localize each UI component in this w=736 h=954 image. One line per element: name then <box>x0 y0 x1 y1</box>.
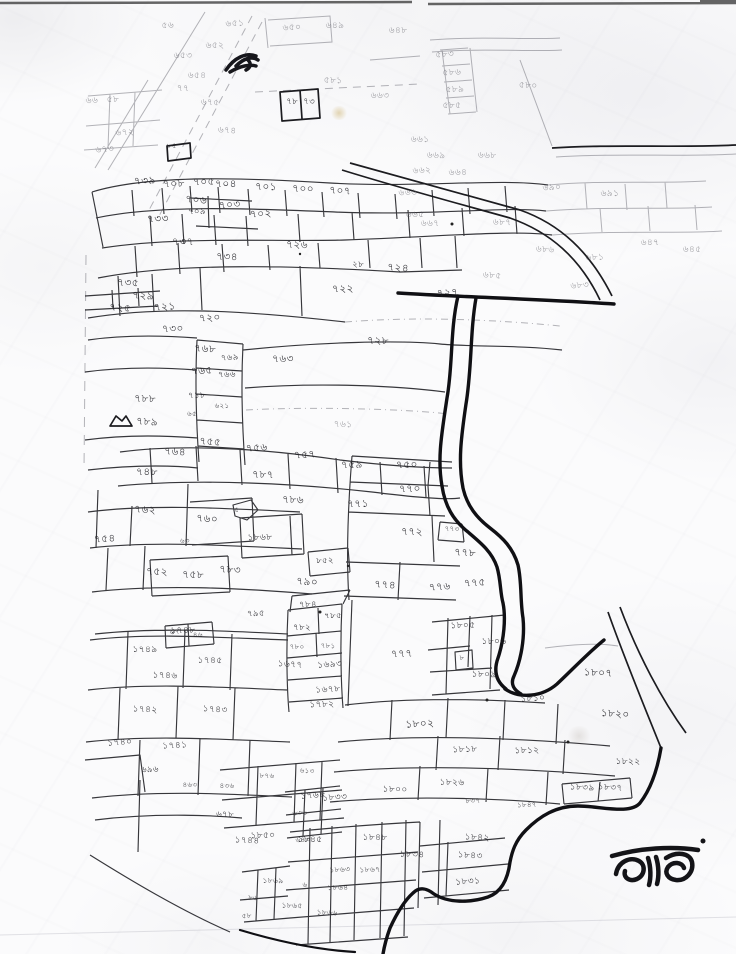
plot-number: ৭৮৩ <box>219 563 241 576</box>
long-right-line <box>552 145 736 148</box>
plot-number: ৫৮১ <box>324 76 343 87</box>
plot-number: ৭০৪ <box>215 178 237 190</box>
plot-number: ৭৬৯ <box>221 352 240 363</box>
plot-number: ৫৮৯ <box>445 85 464 96</box>
plot-number: ৬৩ <box>180 537 190 545</box>
plot-number: ৬৮৭ <box>493 218 512 229</box>
plot-number: ১৮০০ <box>382 785 407 796</box>
plot-number: ৬৪৯ <box>326 21 345 31</box>
plot-number: ৬৬৪ <box>449 168 468 178</box>
plot-number: ৭৬২ <box>134 503 156 516</box>
plot-number: ৬৬৬ <box>398 188 417 199</box>
plot-number: ১৮৩১ <box>455 876 481 888</box>
plot-number: ৭৫৪ <box>94 532 116 545</box>
plot-number: ৬ <box>303 881 308 889</box>
plot-number: ৬৫০ <box>282 23 301 34</box>
plot-number: ৭৮৯ <box>136 415 158 428</box>
plot-number: ৭৬৫ <box>191 364 213 377</box>
plot-number: ৭০৯ <box>188 207 206 218</box>
plot-number: ৭৮১ <box>320 642 335 651</box>
plot-number: ৬৬২ <box>412 166 431 177</box>
plot-number-labels: ৫৬৬৫১৬৫০৬৫২৬৫৩৬৫৪৭৭৬৭৫৬৭৪৬৭৩৬৭২৬৬৫৮৬৪৯৬৪… <box>86 19 702 921</box>
plot-number: ৬৬৮ <box>477 151 496 162</box>
plot-number: ৭২৭ <box>437 286 459 299</box>
plot-number: ৬৯০ <box>542 183 561 194</box>
plot-number: ১৮৪২ <box>464 832 489 843</box>
plot-number: ৭৭৮ <box>454 546 476 559</box>
plot-number: ৭২৯ <box>132 289 154 302</box>
plot-number: ৭২০ <box>199 311 221 324</box>
plot-number: ১৮১৮ <box>452 745 477 756</box>
plot-number: ১৭৪৩ <box>202 704 228 716</box>
plot-number: ৭৮৫ <box>324 611 342 621</box>
plot-number: ৬৭২ <box>115 128 134 139</box>
plot-number: ১৮৬৬ <box>316 907 338 917</box>
plot-number: ১৮৪৭ <box>517 801 537 810</box>
plot-number: ১৮৫০ <box>250 831 275 841</box>
plot-number: ৭৮৬ <box>282 494 304 507</box>
plot-number: ১৭৪২ <box>132 704 157 715</box>
plot-number: ১৬৭৭ <box>277 659 303 671</box>
southeast-road <box>608 607 686 748</box>
plot-number: ৭০৫ <box>193 176 215 188</box>
plot-number: ৬৪৫ <box>683 245 702 255</box>
plot-number: ১৮৪৩ <box>457 850 483 862</box>
bottom-left-tail <box>240 930 355 952</box>
plot-number: ৭৫৬ <box>246 441 268 454</box>
plot-number: ৮৫২ <box>316 556 334 566</box>
plot-number: ১৮৬৪ <box>327 883 348 892</box>
plot-number: ১৮২৬ <box>439 778 464 788</box>
scanned-map-page: ৫৬৬৫১৬৫০৬৫২৬৫৩৬৫৪৭৭৬৭৫৬৭৪৬৭৩৬৭২৬৬৫৮৬৪৯৬৪… <box>0 0 736 954</box>
plot-number: ৭৫০ <box>396 459 418 471</box>
plot-number: ৭৬৬ <box>218 370 236 381</box>
plot-number: ৭২৫ <box>109 301 131 314</box>
plot-number: ৭৩০ <box>162 323 184 336</box>
plot-number: ৬৬৩ <box>371 91 390 101</box>
plot-number: ১৮২০ <box>600 707 630 721</box>
plot-number: ৫৮ <box>242 912 252 921</box>
plot-number: ৫৬ <box>161 21 174 32</box>
plot-number: ৭৬১ <box>334 420 353 431</box>
plot-number: ৭২৪ <box>387 261 409 274</box>
plot-number: ৬৩৬ <box>292 809 307 818</box>
plot-number: ৭০৭ <box>329 184 351 197</box>
scan-top-edge <box>0 1 736 4</box>
plot-number: ৭৮২ <box>293 623 311 633</box>
plot-number: ২৮ <box>352 260 364 271</box>
plot-number: ১৬৯৩ <box>317 659 343 671</box>
plot-number: ৭২১ <box>154 300 176 313</box>
plot-number: ৫৮০ <box>518 80 537 91</box>
plot-number: ৭৮০ <box>290 643 305 652</box>
plot-number: ৭৩৫ <box>117 277 139 290</box>
plot-number: ১৮৬৭ <box>359 865 380 875</box>
plot-number: ৬৯৬ <box>141 765 159 776</box>
plot-number: ৭০০ <box>292 183 314 196</box>
plot-number: ৭৬৪ <box>164 445 186 458</box>
plot-number: ৭৭৭ <box>391 648 413 661</box>
plot-number: ৬৫৪ <box>188 71 207 81</box>
plot-number: ১৮১০ <box>520 693 546 705</box>
plot-number: ১৮০২ <box>405 717 434 730</box>
plot-number: ১৮৬৯ <box>262 876 283 885</box>
plot-number: ৭১৮ <box>188 391 206 401</box>
plot-number: ৭৫৯ <box>341 459 363 472</box>
plot-number: ১৮০৬ <box>482 637 507 647</box>
plot-number: ৭৬৩ <box>272 353 294 365</box>
plot-number: ৭২৮ <box>367 335 389 347</box>
plot-number: ১৭৪৯ <box>133 645 158 655</box>
plot-number: ৫৮৩ <box>435 49 454 60</box>
plot-number: ৬৪৮ <box>389 26 408 36</box>
plot-number: ১৮৩৩ <box>322 792 348 804</box>
plot-number: ৬২১ <box>215 402 230 410</box>
plot-number: ৬৮৫ <box>482 270 501 281</box>
plot-number: ১৭৪০ <box>107 737 133 749</box>
plot-number: ১৭৮২ <box>309 700 334 711</box>
plot-number: ১৮০৭ <box>583 666 612 679</box>
plot-number: ৭৭৩ <box>445 525 460 534</box>
plot-number: ৭৭ <box>177 84 190 94</box>
plot-number: ৬৫১ <box>225 19 244 30</box>
plot-number: ৭২২ <box>332 283 354 295</box>
plot-number: ৭৮৭ <box>252 469 274 481</box>
plot-number: ১৮৩৪ <box>399 850 424 861</box>
signature-scribble <box>612 839 706 886</box>
plot-number: ৭০৩ <box>219 198 241 211</box>
plot-number: ৮৬ <box>248 894 258 903</box>
plot-number: ৬৮৬ <box>535 245 554 256</box>
plot-number: ১৮১২ <box>514 746 539 756</box>
plot-number: ৬৭৫ <box>200 98 219 109</box>
plot-number: ১৮৬৫ <box>281 901 302 911</box>
plot-number: ৭৬৮ <box>194 342 216 355</box>
plot-number: ১৮৩৭ <box>597 782 623 794</box>
plot-number: ৭৪৮ <box>136 466 158 478</box>
plot-number: ৭৩৪ <box>216 251 238 264</box>
plot-number: ৬৭৪ <box>217 125 236 136</box>
plot-number: ১৮০৫ <box>450 621 475 631</box>
plot-number: ১৮৬৩ <box>329 864 351 874</box>
plot-number: ১৭৪৬ <box>152 671 177 682</box>
plot-number: ৬৬৯ <box>427 151 446 162</box>
plot-number: ৬৮৩ <box>570 280 589 291</box>
plot-number: ৫৮৫ <box>443 101 462 111</box>
plot-number: ৭৭৫ <box>464 576 486 589</box>
pen-scribble <box>226 55 258 72</box>
plot-number: ৫ <box>234 506 239 514</box>
plot-number: ৮৩৭ <box>465 797 480 806</box>
plot-number: ৭৯০ <box>296 575 318 588</box>
plot-number: ৭৭৪ <box>374 578 396 591</box>
plot-number: ১৮০৯ <box>471 670 496 681</box>
river-head-line <box>398 293 614 304</box>
plot-number: ১৮৪৫ <box>298 835 323 845</box>
plot-number: ৭৫৫ <box>199 435 221 448</box>
plot-number: ৭০২ <box>250 207 272 220</box>
plot-number: ৭৩৭ <box>172 236 194 248</box>
plot-number: ৬৭৩ <box>95 144 114 155</box>
plot-number: ৭৭৬ <box>429 580 451 593</box>
plot-number: ৮৫ <box>167 142 177 151</box>
plot-number: ১৭৪৫ <box>197 656 222 666</box>
plot-number: ৭৮৮ <box>134 393 156 406</box>
plot-number: ৪৩৬ <box>220 782 235 790</box>
map-svg: ৫৬৬৫১৬৫০৬৫২৬৫৩৬৫৪৭৭৬৭৫৬৭৪৬৭৩৬৭২৬৬৫৮৬৪৯৬৪… <box>0 0 736 954</box>
plot-number: ৭৩ <box>303 97 316 108</box>
plot-number: ৭৭১ <box>347 498 369 510</box>
plot-number: ৭৬০ <box>196 512 218 525</box>
plot-number: ৭৩৩ <box>147 213 169 225</box>
plot-number: ৬৮১ <box>585 253 604 264</box>
plot-number: ৬৬৭ <box>421 219 440 229</box>
plot-number: ৬৪৭ <box>641 238 660 248</box>
plot-number: ৬৯১ <box>601 189 620 199</box>
plot-number: ৭৫৮ <box>182 569 204 582</box>
plot-number: ১৬৭৮ <box>315 684 340 695</box>
plot-number: ১৮৩৯ <box>569 782 594 793</box>
plot-boundaries <box>85 179 632 945</box>
plot-number: ৬৫২ <box>206 41 225 51</box>
plot-number: ৬৭৮ <box>216 810 234 821</box>
plot-number: ৭০৮ <box>163 178 185 191</box>
plot-number: ৮৭৬ <box>260 772 275 780</box>
plot-number: ৭২৬ <box>286 239 308 251</box>
plot-number: ৭৮৪ <box>299 600 317 610</box>
plot-number: ৫৮৬ <box>442 68 461 79</box>
plot-number: ৭০১ <box>255 181 277 193</box>
plot-number: ৭৫২ <box>146 566 168 578</box>
plot-number: ৬১৩ <box>299 766 314 775</box>
plot-number: ১৭৪৮ <box>170 626 195 636</box>
plot-number: ১৮৪৮ <box>362 833 387 843</box>
plot-number: ৭৭২ <box>401 526 423 538</box>
plot-number: ৭৯৫ <box>247 609 265 620</box>
plot-number: ১৮২২ <box>616 757 641 767</box>
plot-number: ৪৬৩ <box>182 781 197 789</box>
plot-number: ৮ <box>459 654 464 662</box>
plot-number: ৬৫৩ <box>174 51 193 61</box>
plot-number: ৭৫৭ <box>294 448 316 461</box>
plot-number: ৭০৬ <box>185 193 207 206</box>
plot-number: ৭৮ <box>286 97 298 108</box>
house-icon <box>110 416 132 426</box>
plot-number: ১৭৪১ <box>162 740 187 751</box>
plot-number: ৬৫ <box>187 410 197 418</box>
plot-number: ৫৮ <box>107 95 120 105</box>
plot-number: ৬৬১ <box>411 135 430 145</box>
plot-number: ১৮৬৮ <box>247 533 272 543</box>
plot-number: ৬৬ <box>86 96 99 106</box>
plot-number: ৭৭০ <box>399 483 421 495</box>
plot-number: ৭৩৯ <box>134 174 156 187</box>
